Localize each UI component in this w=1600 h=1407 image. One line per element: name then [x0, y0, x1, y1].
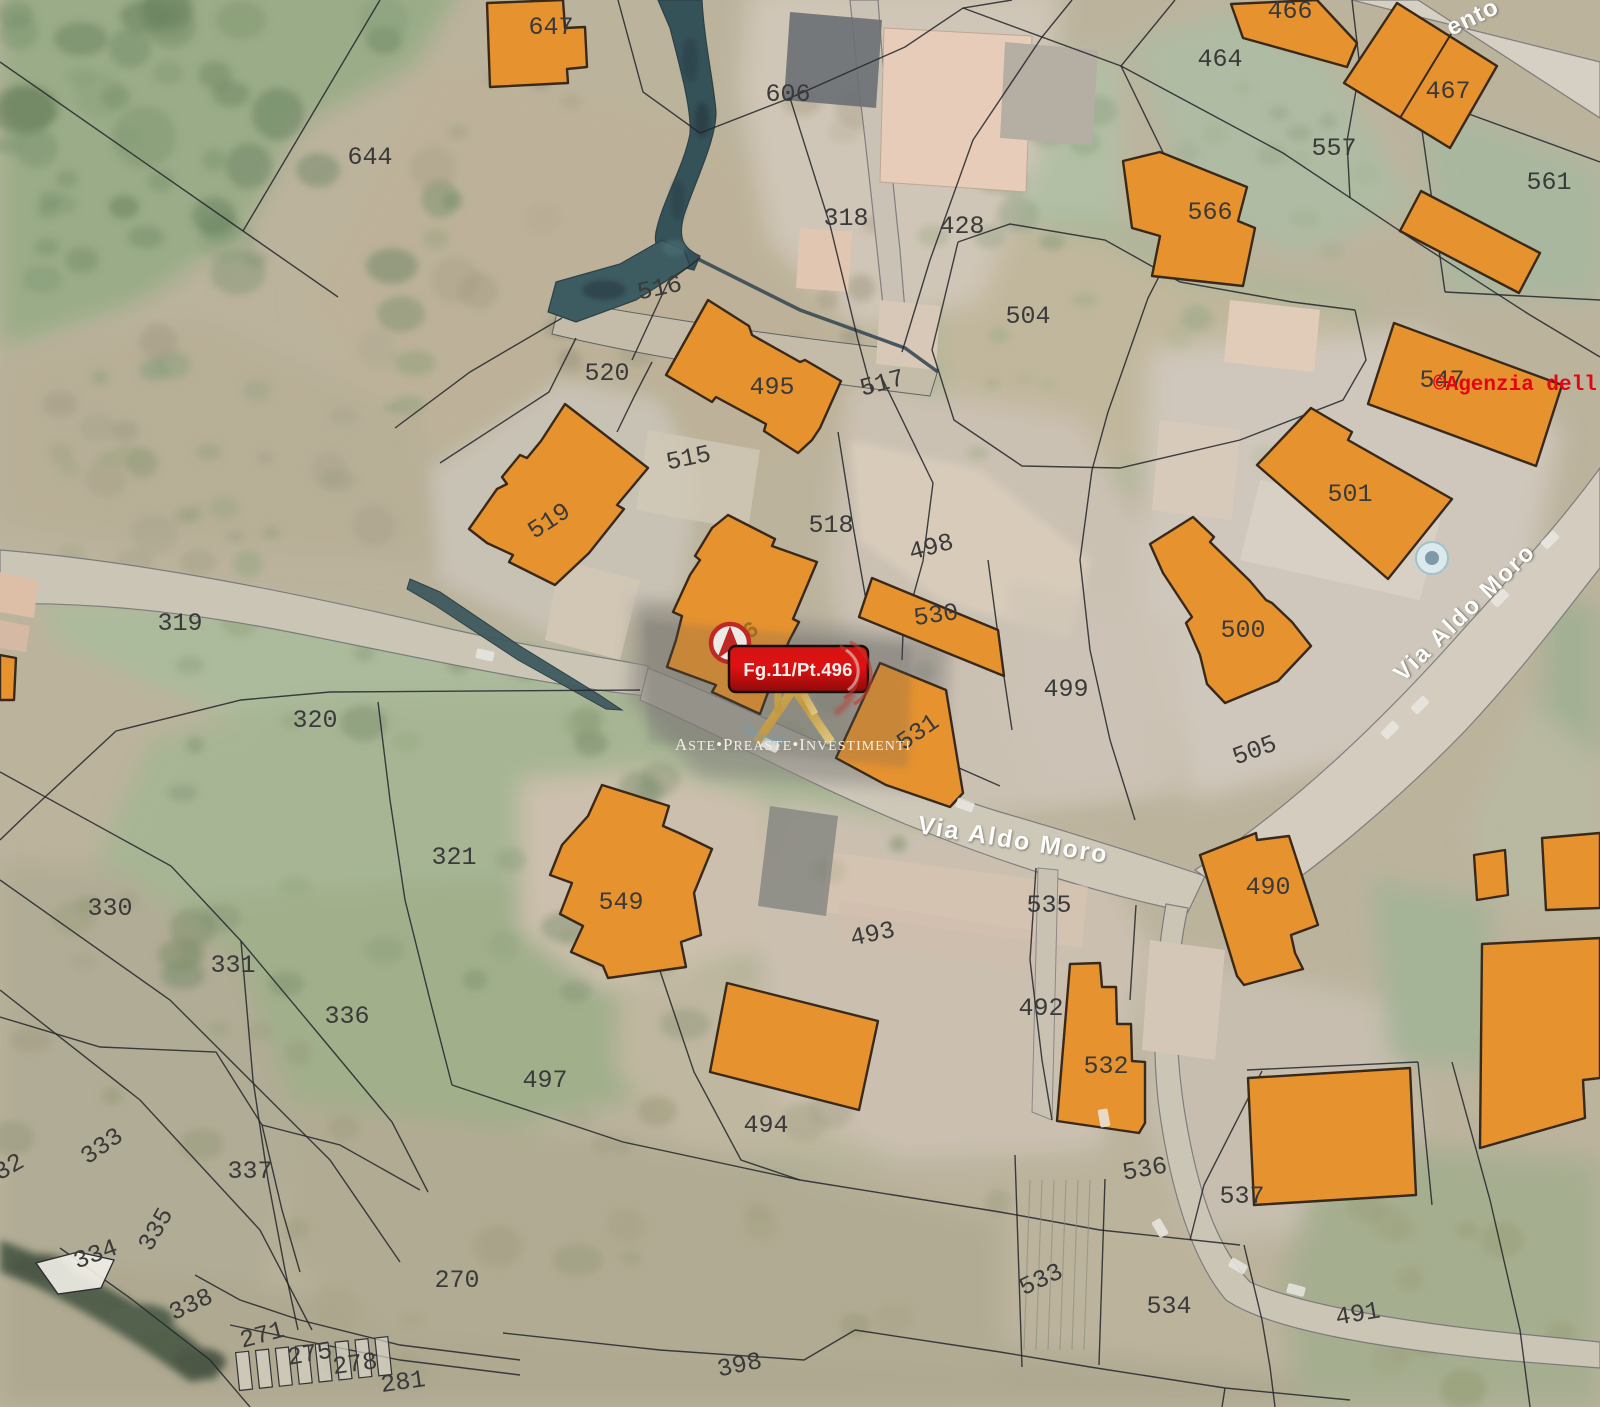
- svg-text:492: 492: [1018, 994, 1063, 1023]
- svg-text:561: 561: [1526, 168, 1571, 197]
- svg-text:281: 281: [379, 1365, 428, 1400]
- svg-text:466: 466: [1267, 0, 1312, 26]
- svg-text:490: 490: [1245, 873, 1290, 902]
- svg-text:494: 494: [743, 1111, 788, 1140]
- svg-text:331: 331: [210, 951, 255, 980]
- svg-text:535: 535: [1026, 891, 1071, 920]
- svg-text:320: 320: [292, 706, 337, 735]
- svg-text:534: 534: [1146, 1292, 1191, 1321]
- svg-text:321: 321: [431, 843, 476, 872]
- svg-text:530: 530: [912, 598, 961, 633]
- svg-text:318: 318: [823, 204, 868, 233]
- svg-text:336: 336: [324, 1002, 369, 1031]
- svg-text:606: 606: [765, 80, 810, 109]
- svg-text:647: 647: [528, 13, 573, 42]
- svg-text:518: 518: [808, 511, 853, 540]
- svg-text:557: 557: [1311, 134, 1356, 163]
- svg-text:495: 495: [749, 373, 794, 402]
- svg-text:644: 644: [347, 143, 392, 172]
- svg-text:270: 270: [434, 1266, 479, 1295]
- svg-text:Fg.11/Pt.496: Fg.11/Pt.496: [743, 659, 852, 680]
- svg-text:464: 464: [1197, 45, 1242, 74]
- svg-text:428: 428: [939, 212, 984, 241]
- svg-text:566: 566: [1187, 198, 1232, 227]
- svg-text:520: 520: [584, 359, 629, 388]
- svg-text:278: 278: [331, 1347, 380, 1382]
- svg-text:501: 501: [1327, 480, 1372, 509]
- svg-text:504: 504: [1005, 302, 1050, 331]
- svg-text:499: 499: [1043, 675, 1088, 704]
- svg-text:549: 549: [598, 888, 643, 917]
- svg-text:467: 467: [1425, 77, 1470, 106]
- svg-text:330: 330: [87, 894, 132, 923]
- svg-text:500: 500: [1220, 616, 1265, 645]
- svg-text:©Agenzia dell: ©Agenzia dell: [1433, 374, 1597, 397]
- svg-text:319: 319: [157, 609, 202, 638]
- svg-text:337: 337: [227, 1157, 272, 1186]
- svg-text:497: 497: [522, 1066, 567, 1095]
- svg-text:532: 532: [1083, 1052, 1128, 1081]
- svg-text:537: 537: [1219, 1182, 1264, 1211]
